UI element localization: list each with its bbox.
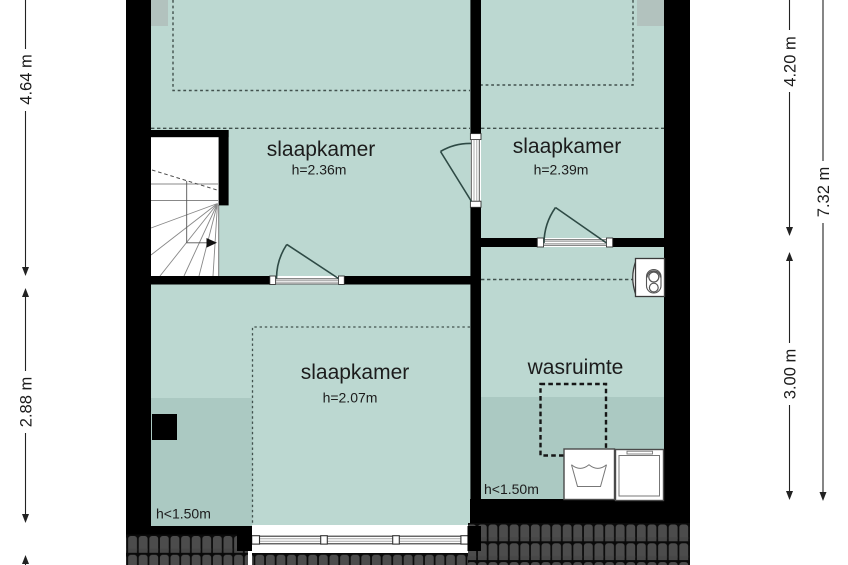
svg-text:2.88 m: 2.88 m (17, 377, 35, 427)
svg-text:wasruimte: wasruimte (527, 356, 624, 379)
svg-text:h=2.07m: h=2.07m (323, 390, 378, 406)
svg-text:4.20 m: 4.20 m (781, 36, 799, 86)
svg-text:h<1.50m: h<1.50m (484, 481, 539, 497)
svg-text:h<1.50m: h<1.50m (156, 506, 211, 522)
svg-text:slaapkamer: slaapkamer (301, 361, 410, 384)
svg-text:slaapkamer: slaapkamer (513, 135, 622, 158)
svg-text:3.00 m: 3.00 m (781, 349, 799, 399)
svg-text:7.32 m: 7.32 m (815, 167, 833, 217)
svg-text:4.64 m: 4.64 m (17, 54, 35, 104)
svg-text:slaapkamer: slaapkamer (267, 138, 376, 161)
svg-text:h=2.36m: h=2.36m (292, 162, 347, 178)
svg-text:h=2.39m: h=2.39m (534, 162, 589, 178)
